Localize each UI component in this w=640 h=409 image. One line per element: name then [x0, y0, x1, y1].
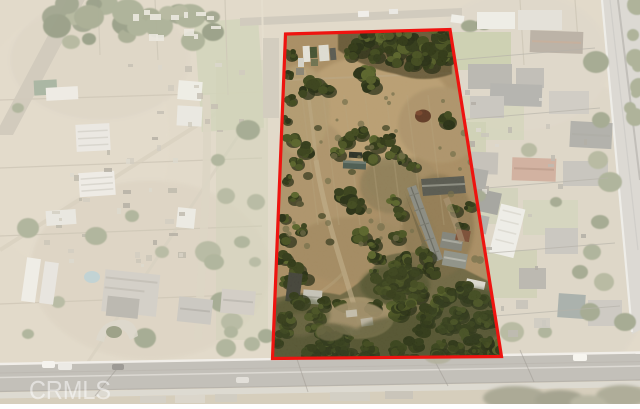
svg-text:CRMLS: CRMLS	[29, 375, 111, 404]
